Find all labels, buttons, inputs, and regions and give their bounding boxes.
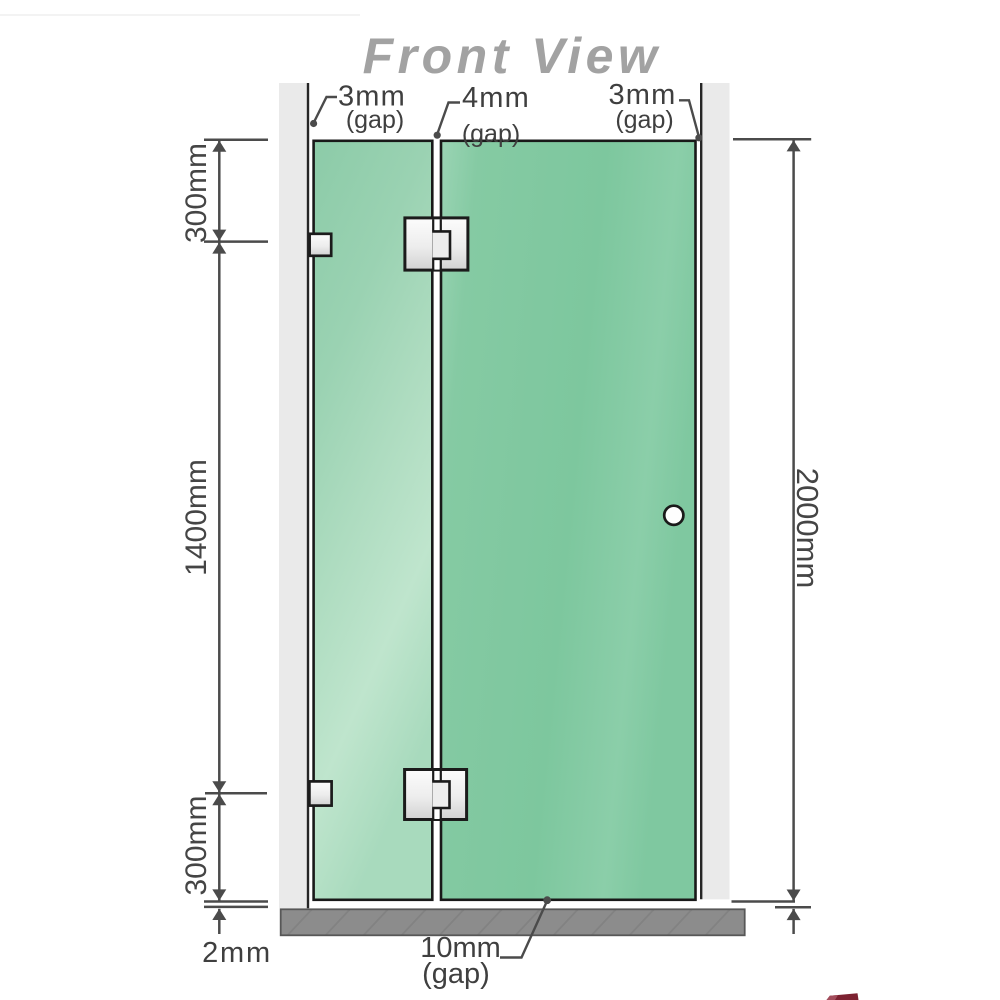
svg-text:2mm: 2mm	[202, 937, 272, 969]
svg-text:Front View: Front View	[363, 28, 662, 84]
svg-text:(gap): (gap)	[615, 106, 673, 134]
svg-text:1400mm: 1400mm	[180, 459, 213, 576]
svg-text:4mm: 4mm	[462, 82, 530, 114]
svg-text:(gap): (gap)	[462, 120, 520, 148]
svg-text:300mm: 300mm	[180, 143, 213, 243]
svg-text:(gap): (gap)	[422, 958, 490, 990]
svg-text:(gap): (gap)	[346, 106, 404, 134]
svg-text:300mm: 300mm	[180, 795, 213, 895]
svg-text:2000mm: 2000mm	[790, 468, 825, 589]
